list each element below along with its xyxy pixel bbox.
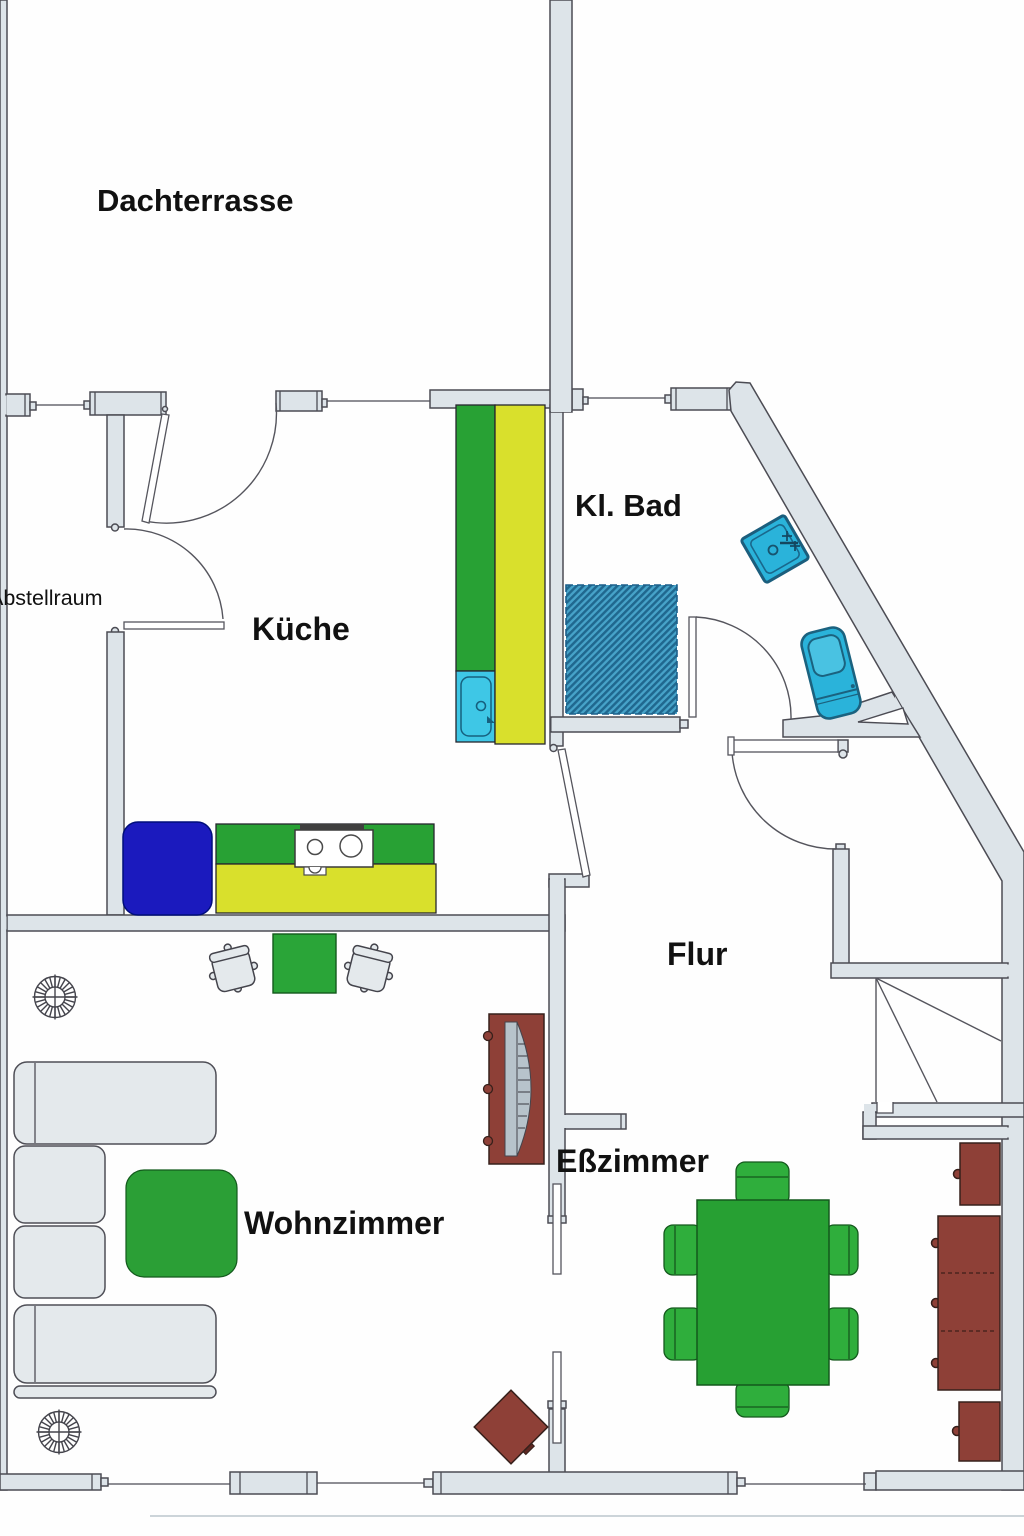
svg-text:Eßzimmer: Eßzimmer bbox=[556, 1143, 709, 1179]
svg-text:Wohnzimmer: Wohnzimmer bbox=[244, 1205, 444, 1241]
svg-text:Abstellraum: Abstellraum bbox=[0, 586, 103, 610]
svg-text:Dachterrasse: Dachterrasse bbox=[97, 183, 293, 218]
svg-text:Flur: Flur bbox=[667, 936, 727, 972]
svg-text:Kl. Bad: Kl. Bad bbox=[575, 488, 682, 523]
svg-text:Küche: Küche bbox=[252, 611, 350, 647]
